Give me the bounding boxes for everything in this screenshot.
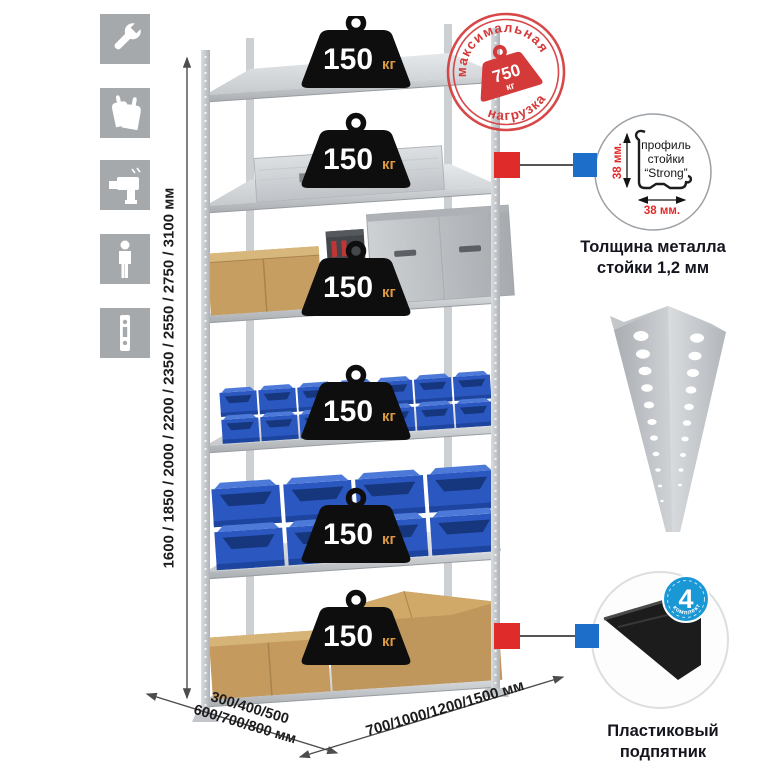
badge-value: 150 <box>323 395 373 428</box>
profile-label-3: “Strong” <box>644 166 687 180</box>
load-badge-2: 150 кг <box>302 116 411 189</box>
profile-dim-horizontal: 38 мм. <box>644 205 680 217</box>
load-badge-1: 150 кг <box>302 16 411 88</box>
badge-unit: кг <box>382 56 396 73</box>
badge-value: 150 <box>323 271 373 304</box>
angle-post-image <box>594 300 750 540</box>
shelving-unit-illustration: 150 кг 150 кг 150 кг 150 кг 150 кг 150 к… <box>186 16 546 731</box>
gloves-icon <box>100 88 150 138</box>
profile-dim-vertical: 38 мм. <box>612 143 624 179</box>
badge-unit: кг <box>382 633 396 650</box>
profile-caption: Толщина металла стойки 1,2 мм <box>568 237 738 280</box>
post-profile-detail: 38 мм. 38 мм. профиль стойки “Strong” <box>592 111 714 233</box>
wrench-icon-tile <box>100 14 150 64</box>
front-right-post <box>482 28 509 697</box>
person-icon-tile <box>100 234 150 284</box>
foot-caption: Пластиковый подпятник <box>593 721 733 764</box>
profile-strip-icon <box>100 308 150 358</box>
profile-label-2: стойки <box>648 152 685 166</box>
front-left-post <box>192 50 219 722</box>
wrench-icon <box>100 14 150 64</box>
badge-value: 150 <box>323 143 373 176</box>
back-left-post <box>246 38 254 694</box>
badge-value: 150 <box>323 620 373 653</box>
profile-strip-icon-tile <box>100 308 150 358</box>
badge-unit: кг <box>382 531 396 548</box>
badge-unit: кг <box>382 408 396 425</box>
profile-label-1: профиль <box>641 138 691 152</box>
drill-icon <box>100 160 150 210</box>
badge-unit: кг <box>382 284 396 301</box>
plastic-foot-detail: 4 в комплекте <box>588 565 738 715</box>
drill-icon-tile <box>100 160 150 210</box>
height-dimension-label: 1600 / 1850 / 2000 / 2200 / 2350 / 2550 … <box>161 188 178 569</box>
badge-value: 150 <box>323 43 373 76</box>
gloves-icon-tile <box>100 88 150 138</box>
badge-unit: кг <box>382 156 396 173</box>
back-right-post <box>444 24 452 670</box>
person-icon <box>100 234 150 284</box>
badge-value: 150 <box>323 518 373 551</box>
